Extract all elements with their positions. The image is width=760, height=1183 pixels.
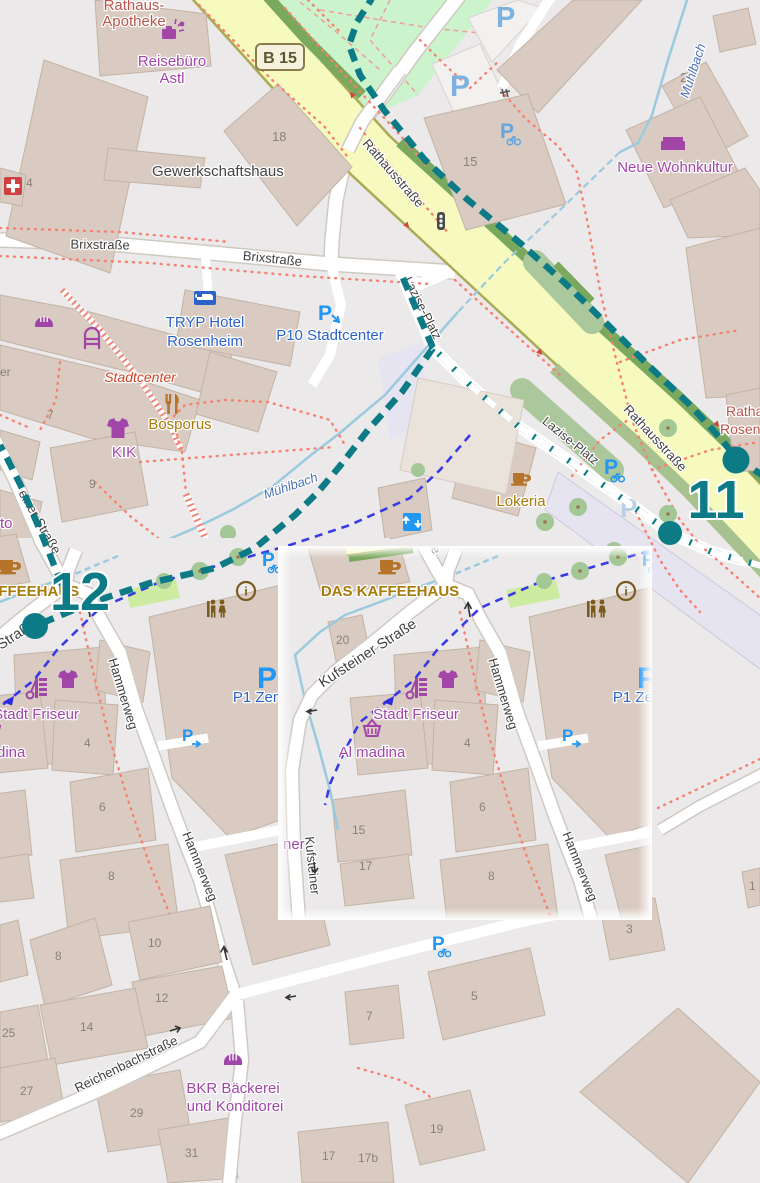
svg-text:31: 31 bbox=[185, 1146, 199, 1160]
svg-text:Reisebüro: Reisebüro bbox=[138, 53, 206, 70]
svg-text:8: 8 bbox=[55, 949, 62, 963]
svg-text:18: 18 bbox=[272, 129, 286, 144]
svg-text:Gewerkschaftshaus: Gewerkschaftshaus bbox=[152, 163, 284, 180]
svg-text:4: 4 bbox=[26, 176, 33, 190]
svg-text:3: 3 bbox=[626, 922, 633, 936]
svg-text:Stadtcenter: Stadtcenter bbox=[104, 369, 177, 385]
svg-text:12: 12 bbox=[155, 991, 169, 1005]
svg-text:P10 Stadtcenter: P10 Stadtcenter bbox=[276, 327, 384, 344]
svg-text:9: 9 bbox=[89, 477, 96, 491]
svg-text:27: 27 bbox=[20, 1084, 34, 1098]
svg-text:Apotheke: Apotheke bbox=[102, 13, 165, 30]
svg-text:12: 12 bbox=[50, 562, 110, 622]
svg-text:29: 29 bbox=[130, 1106, 144, 1120]
svg-text:15: 15 bbox=[463, 154, 477, 169]
svg-text:1: 1 bbox=[749, 879, 756, 893]
svg-text:25: 25 bbox=[2, 1026, 16, 1040]
svg-text:to: to bbox=[0, 515, 13, 532]
svg-text:Rathaus: Rathaus bbox=[726, 403, 760, 419]
svg-text:P: P bbox=[318, 302, 332, 325]
svg-text:5: 5 bbox=[471, 989, 478, 1003]
svg-text:TRYP Hotel: TRYP Hotel bbox=[166, 314, 245, 331]
svg-text:Rathaus-: Rathaus- bbox=[104, 0, 165, 14]
svg-text:14: 14 bbox=[80, 1020, 94, 1034]
svg-text:19: 19 bbox=[430, 1122, 444, 1136]
svg-text:er: er bbox=[0, 365, 11, 379]
svg-text:Rosenhe: Rosenhe bbox=[720, 421, 760, 437]
svg-text:7: 7 bbox=[47, 408, 54, 422]
svg-text:P: P bbox=[496, 2, 515, 34]
svg-text:Brixstraße: Brixstraße bbox=[70, 236, 129, 252]
svg-text:7: 7 bbox=[366, 1009, 373, 1023]
svg-text:P: P bbox=[450, 70, 470, 103]
svg-text:10: 10 bbox=[148, 936, 162, 950]
svg-text:KIK: KIK bbox=[112, 444, 136, 461]
svg-text:und Konditorei: und Konditorei bbox=[187, 1098, 284, 1115]
svg-text:11: 11 bbox=[687, 470, 744, 530]
svg-text:Astl: Astl bbox=[159, 70, 184, 87]
svg-text:17b: 17b bbox=[358, 1151, 378, 1165]
svg-text:Bosporus: Bosporus bbox=[148, 416, 211, 433]
svg-text:Neue Wohnkultur: Neue Wohnkultur bbox=[617, 159, 733, 176]
svg-text:BKR Bäckerei: BKR Bäckerei bbox=[186, 1080, 279, 1097]
svg-text:B 15: B 15 bbox=[263, 50, 297, 67]
svg-text:Lokeria: Lokeria bbox=[496, 493, 546, 510]
svg-text:17: 17 bbox=[322, 1149, 336, 1163]
svg-text:Rosenheim: Rosenheim bbox=[167, 333, 243, 350]
